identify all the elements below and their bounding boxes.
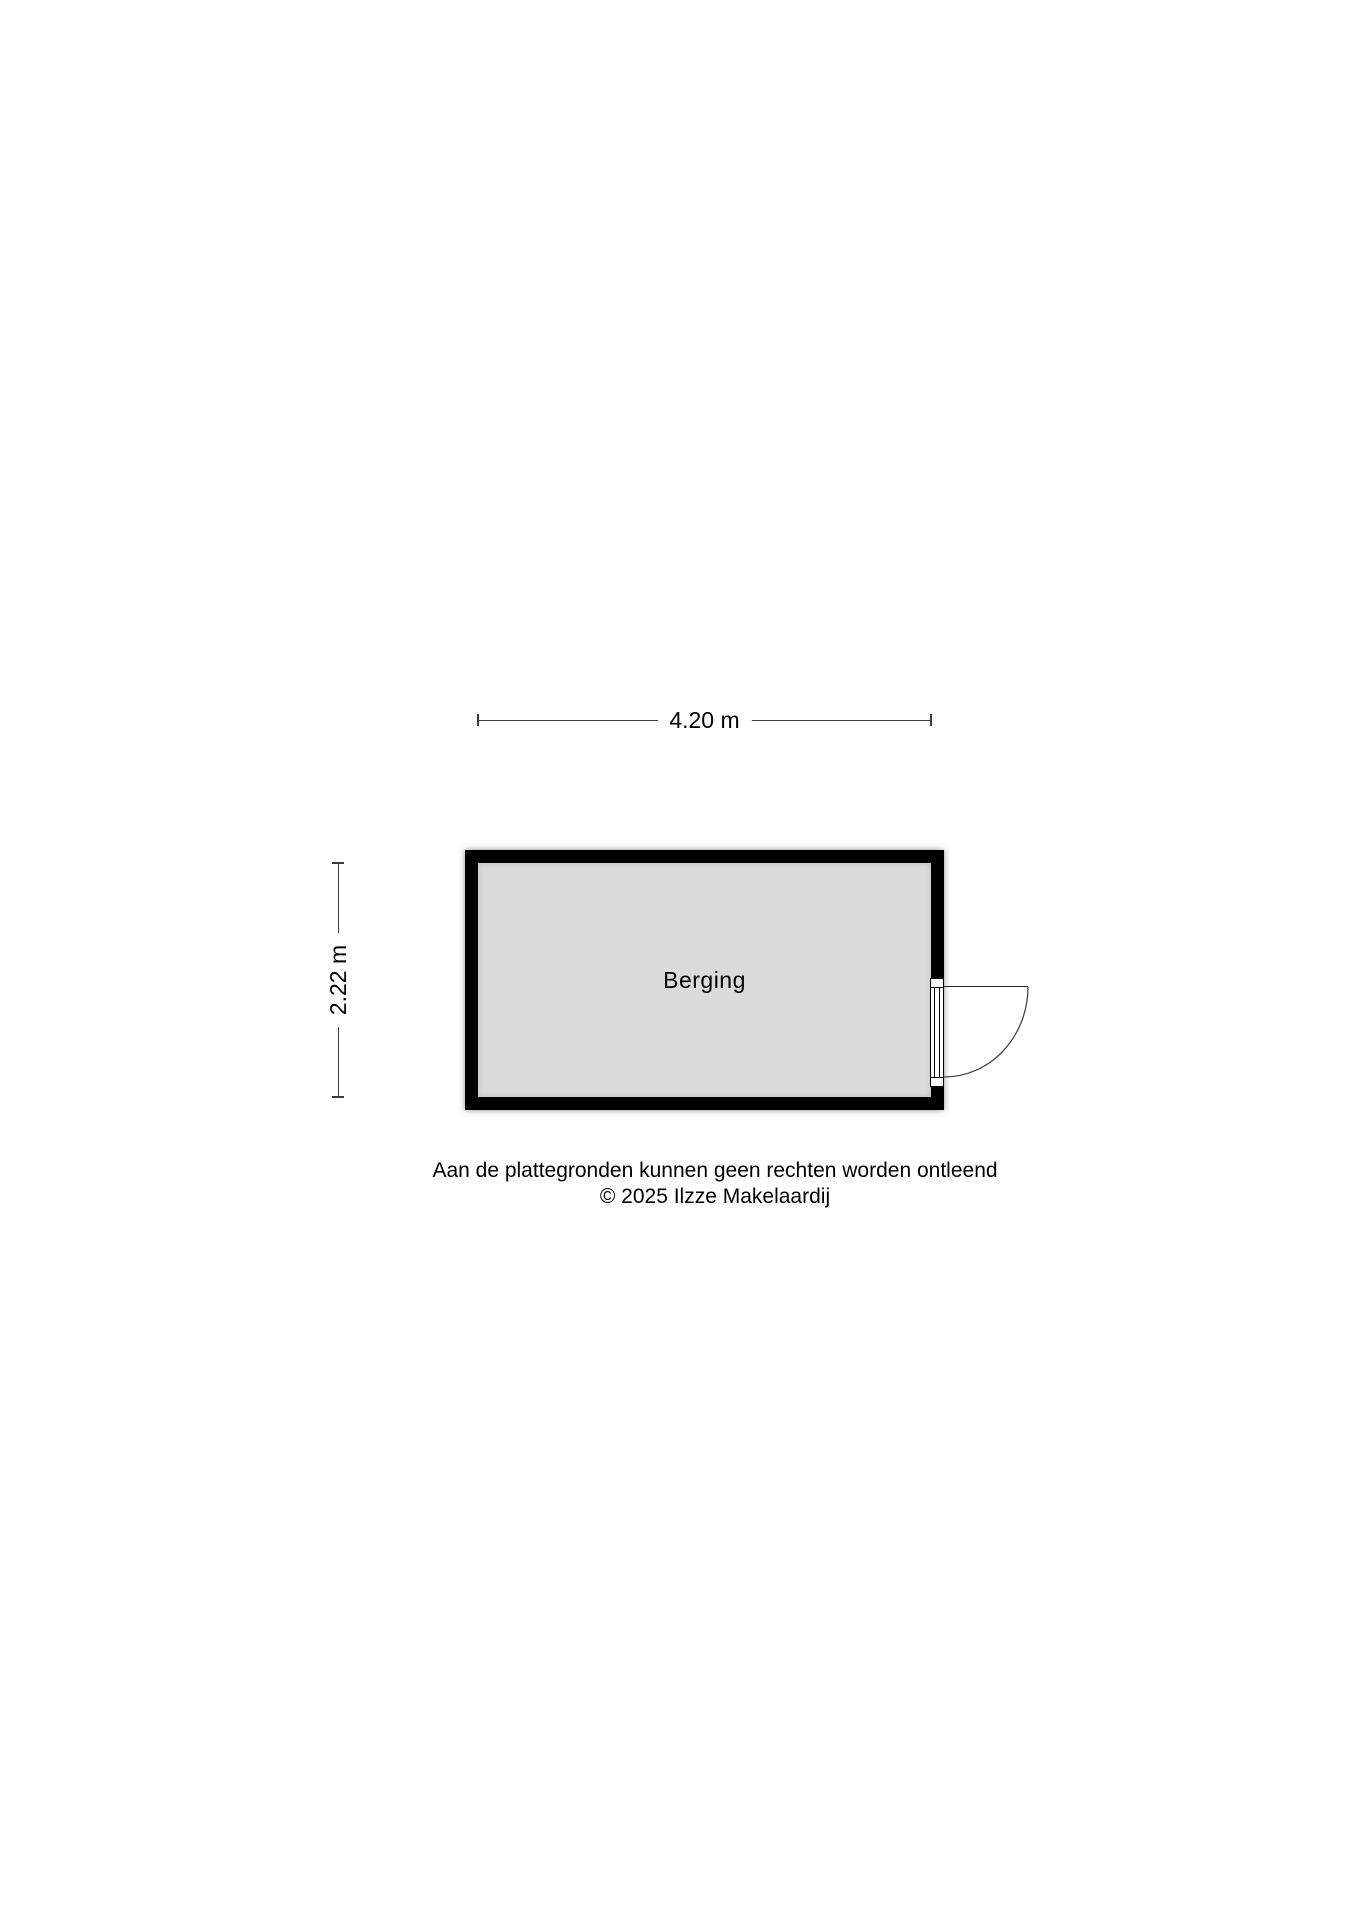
disclaimer: Aan de plattegronden kunnen geen rechten… (432, 1158, 997, 1210)
room-berging: Berging (465, 850, 944, 1110)
disclaimer-line1: Aan de plattegronden kunnen geen rechten… (432, 1158, 997, 1184)
width-dimension-tick-left (477, 714, 479, 726)
floorplan-page: 4.20 m 2.22 m Berging Aan de plattegrond… (0, 0, 1358, 1920)
door-panel (930, 988, 944, 1077)
width-dimension: 4.20 m (478, 708, 931, 732)
height-dimension-label: 2.22 m (325, 933, 351, 1027)
height-dimension: 2.22 m (326, 863, 350, 1097)
disclaimer-line2: © 2025 Ilzze Makelaardij (432, 1184, 997, 1210)
height-dimension-tick-top (332, 862, 344, 864)
width-dimension-label: 4.20 m (657, 707, 751, 733)
door-jamb-top (930, 978, 944, 988)
door-jamb-bottom (930, 1077, 944, 1087)
height-dimension-tick-bottom (332, 1096, 344, 1098)
room-label: Berging (663, 967, 746, 994)
door-swing-arc-icon (944, 987, 1030, 1079)
width-dimension-tick-right (930, 714, 932, 726)
